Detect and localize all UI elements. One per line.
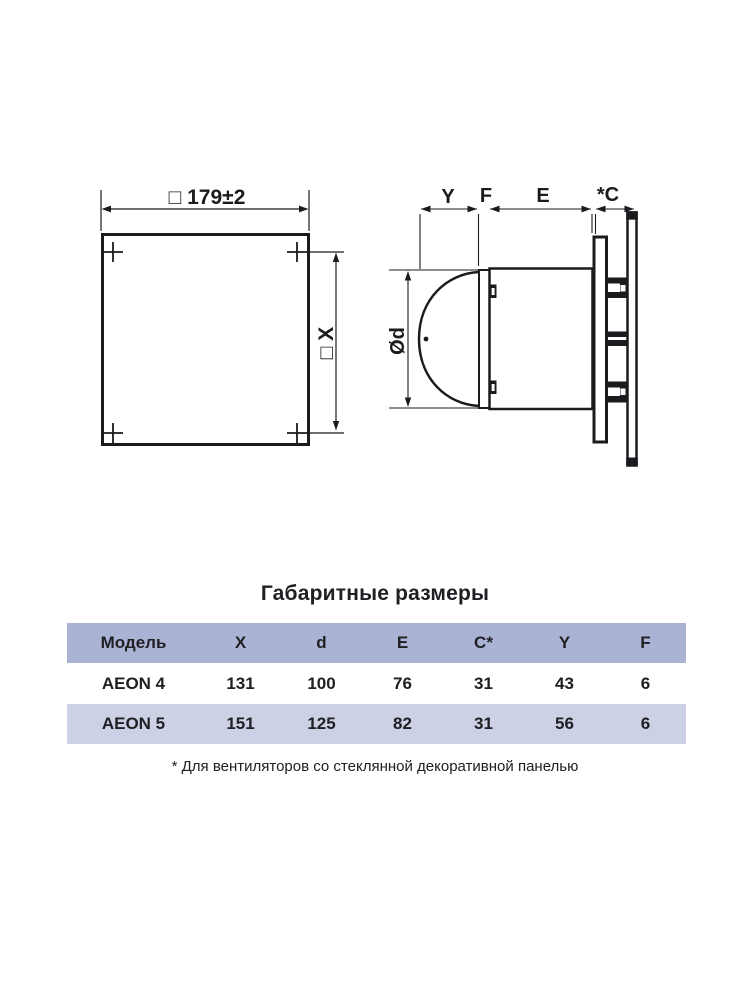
header-cell-e: E [362, 623, 443, 663]
table-cell: 6 [605, 704, 686, 744]
dim-f-label: F [480, 186, 492, 207]
front-width-dimension-label: □ 179±2 [169, 186, 246, 209]
front-panel-outline [103, 235, 309, 445]
header-cell-c: C* [443, 623, 524, 663]
table-cell: 31 [443, 663, 524, 704]
table-footnote: * Для вентиляторов со стеклянной декорат… [0, 758, 750, 775]
header-cell-model: Модель [67, 623, 200, 663]
dim-c-label: *C [597, 186, 619, 206]
front-height-dimension-label: □ X [315, 327, 338, 360]
table-cell: 100 [281, 663, 362, 704]
dimensions-table: Модель X d E C* Y F AEON 4 131 100 76 31… [67, 623, 686, 744]
table-cell: 43 [524, 663, 605, 704]
table-cell: 125 [281, 704, 362, 744]
header-cell-f: F [605, 623, 686, 663]
table-cell: 76 [362, 663, 443, 704]
fan-flange [479, 270, 490, 408]
dome-center-dot [424, 337, 429, 342]
front-view-drawing: □ 179±2 □ X [85, 178, 355, 458]
dim-diameter-label: Ød [388, 327, 409, 355]
table-cell: 131 [200, 663, 281, 704]
panel-spacer-brackets [607, 278, 627, 403]
table-cell: 82 [362, 704, 443, 744]
table-title: Габаритные размеры [0, 582, 750, 606]
table-cell: 6 [605, 663, 686, 704]
table-cell-model: AEON 5 [67, 704, 200, 744]
table-cell: 151 [200, 704, 281, 744]
header-cell-d: d [281, 623, 362, 663]
mounting-plate [594, 237, 607, 442]
header-cell-y: Y [524, 623, 605, 663]
table-cell: 31 [443, 704, 524, 744]
table-cell-model: AEON 4 [67, 663, 200, 704]
dim-y-label: Y [441, 186, 455, 208]
header-cell-x: X [200, 623, 281, 663]
dim-e-label: E [536, 186, 549, 207]
decorative-panel [628, 213, 637, 466]
table-cell: 56 [524, 704, 605, 744]
fan-body [490, 269, 593, 410]
side-view-drawing: Y F E *C Ød [388, 186, 660, 478]
